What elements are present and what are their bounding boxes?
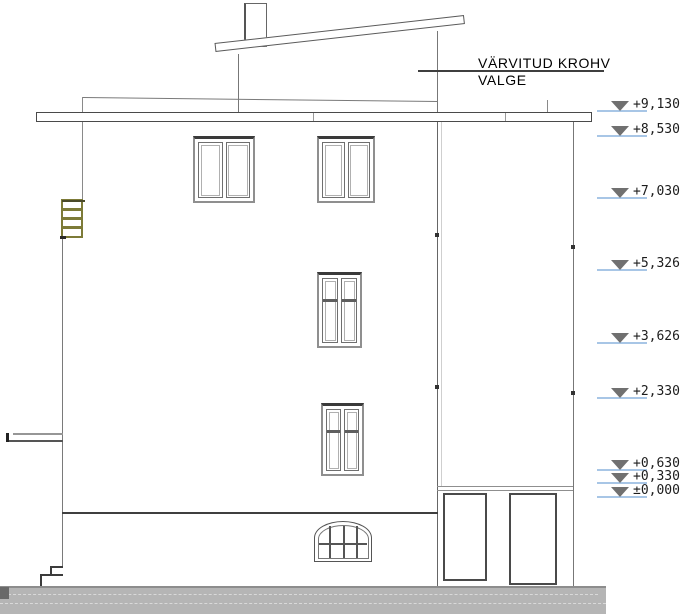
ladder-rung — [63, 208, 81, 211]
wing-lintel-line — [437, 486, 573, 487]
ground-dash-line — [0, 603, 606, 604]
ground-dash-line — [8, 594, 598, 595]
window-basement-arched — [314, 521, 372, 562]
window-transom-rail — [323, 299, 337, 302]
level-value: ±0,000 — [633, 483, 680, 498]
slab-seam — [505, 113, 506, 121]
level-triangle-icon — [611, 487, 629, 497]
ladder-rung — [63, 226, 81, 229]
facade-wing-division-line — [437, 112, 438, 586]
entrance-step-lower — [40, 574, 63, 586]
window-rail — [319, 543, 367, 545]
window-top-left — [193, 136, 255, 203]
roof-access-ladder — [61, 199, 83, 238]
side-canopy-top-line — [13, 433, 63, 435]
level-triangle-icon — [611, 388, 629, 398]
edge-tick — [571, 391, 575, 395]
window-glass — [350, 145, 368, 196]
back-parapet-end-line — [547, 100, 548, 112]
slab-seam — [313, 113, 314, 121]
window-mullion — [343, 526, 345, 558]
window-glass — [347, 412, 357, 469]
window-glass — [329, 412, 339, 469]
edge-tick — [435, 233, 439, 237]
window-casement — [348, 142, 371, 198]
ground-dark-block — [0, 587, 9, 599]
level-value: +5,326 — [633, 256, 680, 271]
edge-tick — [435, 385, 439, 389]
window-casement — [198, 142, 223, 198]
window-glass — [228, 145, 248, 196]
window-casement — [322, 142, 345, 198]
edge-tick — [571, 245, 575, 249]
level-triangle-icon — [611, 101, 629, 111]
wall-junction-tick — [60, 236, 66, 239]
left-wall-lower-line — [62, 238, 63, 586]
ladder-top-bracket — [62, 200, 85, 202]
window-mullion — [356, 526, 358, 558]
level-triangle-icon — [611, 126, 629, 136]
level-value: +9,130 — [633, 97, 680, 112]
penthouse-left-wall-line — [238, 54, 239, 113]
wing-inner-line — [441, 122, 442, 486]
window-first-floor — [321, 403, 364, 476]
level-triangle-icon — [611, 473, 629, 483]
wing-lintel-line — [437, 490, 573, 491]
wing-right-wall-line — [573, 122, 574, 586]
window-casement — [341, 278, 357, 343]
elevation-drawing-sheet: +9,130 +8,530 +7,030 +5,326 +3,626 +2,33… — [0, 0, 692, 614]
level-value: +2,330 — [633, 384, 680, 399]
door-left — [443, 493, 487, 581]
window-casement — [226, 142, 251, 198]
window-transom-rail — [345, 430, 358, 433]
ladder-rung — [63, 217, 81, 220]
window-transom-rail — [327, 430, 340, 433]
level-triangle-icon — [611, 188, 629, 198]
side-canopy-bottom-line — [7, 440, 63, 442]
level-value: +3,626 — [633, 329, 680, 344]
window-glass — [344, 281, 355, 341]
level-value: +7,030 — [633, 184, 680, 199]
parapet-slab — [36, 112, 592, 122]
level-value: +0,330 — [633, 469, 680, 484]
material-label-line1: VÄRVITUD KROHV — [478, 55, 611, 71]
window-casement — [344, 409, 359, 471]
plinth-line — [62, 512, 438, 514]
side-canopy-end-tick — [6, 433, 9, 442]
door-right — [509, 493, 557, 585]
window-casement — [326, 409, 341, 471]
window-second-floor — [317, 272, 362, 348]
window-casement — [322, 278, 338, 343]
window-mullion — [329, 526, 331, 558]
level-triangle-icon — [611, 260, 629, 270]
window-top-right — [317, 136, 375, 203]
level-value: +8,530 — [633, 122, 680, 137]
window-transom-rail — [342, 299, 356, 302]
window-glass — [201, 145, 221, 196]
window-glass — [325, 281, 336, 341]
ground — [0, 586, 606, 614]
level-triangle-icon — [611, 460, 629, 470]
level-triangle-icon — [611, 333, 629, 343]
window-glass — [325, 145, 343, 196]
back-parapet-top-line — [83, 97, 438, 102]
material-label-line2: VALGE — [478, 72, 527, 88]
